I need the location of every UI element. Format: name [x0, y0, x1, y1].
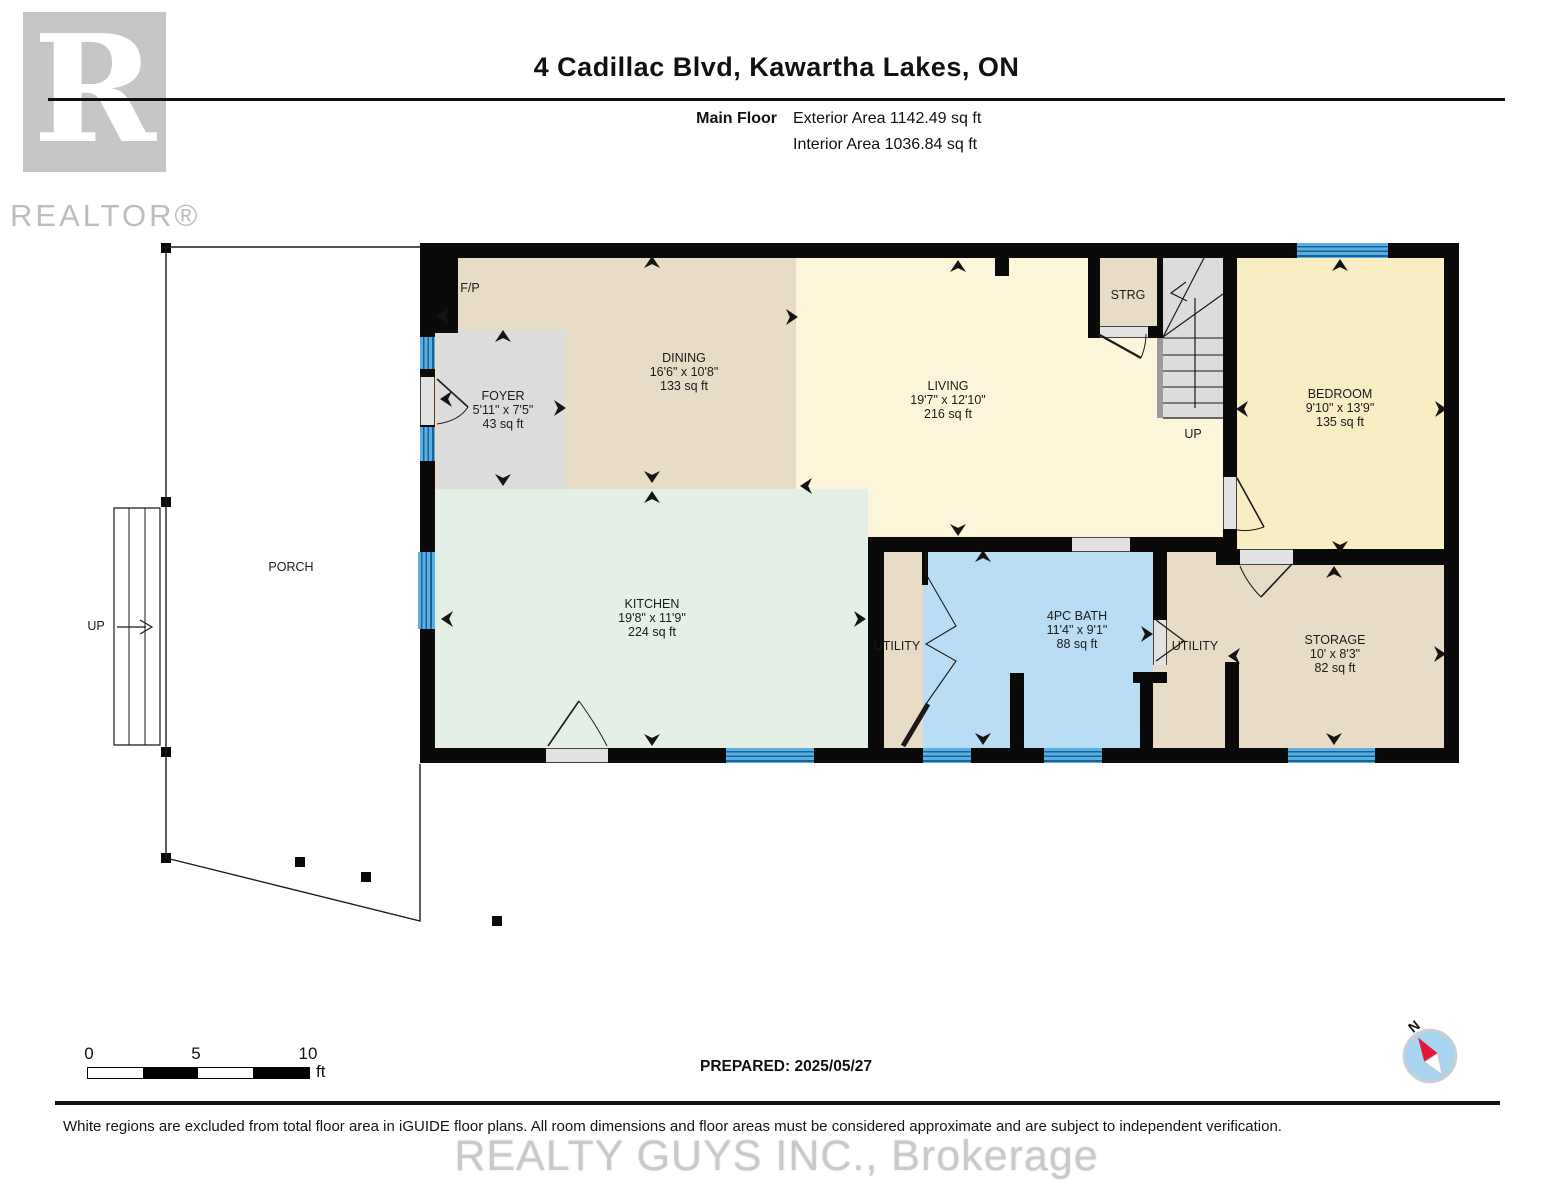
plan-line — [166, 247, 420, 921]
plan-line — [437, 407, 468, 424]
compass-icon: N — [1390, 1005, 1480, 1100]
floor-plan-page: R REALTOR® 4 Cadillac Blvd, Kawartha Lak… — [0, 0, 1553, 1200]
brokerage-watermark: REALTY GUYS INC., Brokerage — [0, 1132, 1553, 1181]
plan-line — [1141, 334, 1146, 358]
plan-line — [1163, 256, 1205, 337]
plan-line — [1156, 620, 1184, 661]
scale-segment — [143, 1068, 198, 1078]
scale-segment — [253, 1068, 309, 1078]
floor-plan-linework — [0, 0, 1553, 1200]
scale-bar — [87, 1067, 310, 1079]
footer-divider — [55, 1101, 1500, 1105]
plan-line — [903, 704, 928, 746]
plan-line — [926, 574, 956, 704]
scale-segment — [198, 1068, 253, 1078]
plan-line — [1163, 294, 1223, 337]
plan-line — [579, 701, 607, 746]
plan-line — [1240, 566, 1261, 597]
plan-line — [1261, 564, 1292, 597]
prepared-date: PREPARED: 2025/05/27 — [700, 1058, 872, 1076]
plan-line — [1171, 282, 1187, 301]
scale-unit: ft — [316, 1062, 325, 1082]
plan-line — [1237, 478, 1264, 527]
plan-line — [1237, 527, 1264, 531]
plan-line — [548, 701, 579, 746]
scale-tick-10: 10 — [299, 1044, 318, 1064]
scale-tick-0: 0 — [84, 1044, 93, 1064]
scale-tick-5: 5 — [191, 1044, 200, 1064]
scale-segment — [88, 1068, 143, 1078]
plan-line — [1098, 334, 1141, 358]
plan-line — [437, 379, 468, 407]
